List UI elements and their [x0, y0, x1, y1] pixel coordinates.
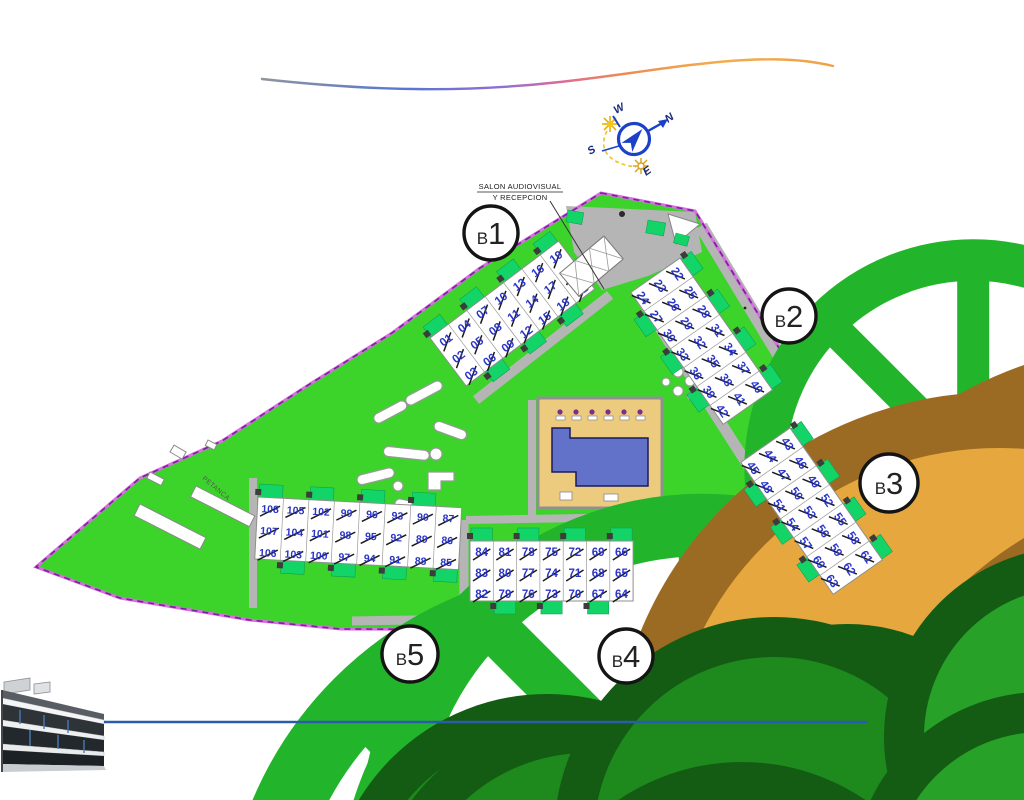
stair-marker: [584, 603, 590, 609]
unit-number: 69: [592, 547, 605, 559]
unit-number: 66: [615, 547, 628, 559]
unit-number: 73: [545, 589, 558, 601]
stair-marker: [357, 494, 363, 500]
terrace: [331, 563, 355, 577]
terrace: [412, 492, 436, 506]
unit-number: 108: [261, 503, 279, 516]
terrace: [310, 487, 334, 501]
terrace: [281, 560, 305, 574]
terrace: [564, 528, 585, 541]
stair-marker: [430, 570, 436, 576]
block-label-prefix: B: [775, 312, 786, 331]
block-label-b5: B5: [382, 626, 438, 682]
unit-number: 98: [339, 529, 351, 542]
site-plan-drawing: W N S E: [0, 0, 1024, 800]
terrace: [433, 568, 457, 582]
stair-marker: [328, 565, 334, 571]
terrace: [541, 601, 562, 614]
unit-number: 79: [499, 589, 512, 601]
building-render: [2, 678, 106, 772]
compass-w: W: [612, 100, 628, 116]
stair-marker: [467, 533, 473, 539]
unit-number: 97: [338, 551, 350, 564]
unit-number: 92: [390, 532, 402, 545]
block-label-prefix: B: [612, 652, 623, 671]
unit-number: 88: [414, 555, 426, 568]
unit-number: 71: [568, 568, 581, 580]
unit-number: 104: [285, 527, 303, 540]
block-label-prefix: B: [875, 479, 886, 498]
unit-number: 105: [287, 505, 305, 518]
block-label-b3: B3: [860, 454, 918, 512]
unit-number: 83: [475, 568, 488, 580]
terrace: [471, 528, 492, 541]
terrace: [518, 528, 539, 541]
unit-number: 70: [568, 589, 581, 601]
block-label-number: 4: [623, 639, 640, 674]
terrace: [382, 566, 406, 580]
reception-label-line1: SALON AUDIOVISUAL: [479, 182, 562, 191]
unit-number: 75: [545, 547, 558, 559]
unit-number: 77: [522, 568, 535, 580]
unit-number: 76: [522, 589, 535, 601]
block-b4: 8483828180797877767574737271706968676665…: [467, 528, 633, 614]
terrace: [611, 528, 632, 541]
unit-number: 96: [366, 509, 378, 522]
compass-rose: W N S E: [586, 100, 678, 178]
unit-number: 72: [568, 547, 581, 559]
top-decorative-curve: [262, 59, 833, 89]
stair-marker: [379, 567, 385, 573]
unit-number: 86: [441, 535, 453, 548]
block-label-prefix: B: [477, 229, 488, 248]
unit-number: 74: [545, 568, 558, 580]
stair-marker: [306, 492, 312, 498]
unit-number: 65: [615, 568, 628, 580]
unit-number: 103: [284, 548, 302, 561]
unit-number: 82: [475, 589, 488, 601]
terrace: [361, 489, 385, 503]
block-label-number: 2: [786, 299, 803, 334]
stair-marker: [607, 533, 613, 539]
unit-number: 107: [260, 525, 278, 538]
site-plan-page: W N S E: [0, 0, 1024, 800]
unit-number: 85: [440, 557, 452, 570]
unit-number: 101: [311, 528, 329, 541]
unit-number: 102: [312, 506, 330, 519]
unit-number: 106: [259, 547, 277, 560]
unit-number: 100: [310, 550, 328, 563]
terrace: [494, 601, 515, 614]
stair-marker: [408, 497, 414, 503]
unit-number: 90: [417, 511, 429, 524]
terrace: [259, 484, 283, 498]
unit-number: 81: [499, 547, 512, 559]
stair-marker: [537, 603, 543, 609]
unit-number: 87: [442, 513, 454, 526]
stair-marker: [277, 562, 283, 568]
unit-number: 80: [499, 568, 512, 580]
stair-marker: [560, 533, 566, 539]
block-label-number: 3: [886, 466, 903, 501]
unit-number: 67: [592, 589, 605, 601]
terrace: [588, 601, 609, 614]
unit-number: 78: [522, 547, 535, 559]
block-label-b1: B1: [464, 206, 518, 260]
unit-number: 84: [475, 547, 488, 559]
compass-s: S: [586, 143, 599, 157]
unit-number: 64: [615, 589, 628, 601]
unit-number: 93: [391, 510, 403, 523]
unit-number: 68: [592, 568, 605, 580]
unit-number: 94: [364, 553, 376, 566]
block-label-number: 5: [407, 637, 424, 672]
block-label-number: 1: [488, 216, 505, 251]
unit-number: 95: [365, 531, 377, 544]
block-label-b2: B2: [762, 289, 816, 343]
unit-number: 99: [340, 507, 352, 520]
block-label-b4: B4: [599, 629, 653, 683]
block-label-prefix: B: [396, 650, 407, 669]
reception-label-line2: Y RECEPCION: [493, 193, 548, 202]
unit-number: 89: [416, 533, 428, 546]
compass-e: E: [641, 164, 654, 178]
unit-number: 91: [389, 554, 401, 567]
stair-marker: [514, 533, 520, 539]
stair-marker: [255, 489, 261, 495]
stair-marker: [490, 603, 496, 609]
